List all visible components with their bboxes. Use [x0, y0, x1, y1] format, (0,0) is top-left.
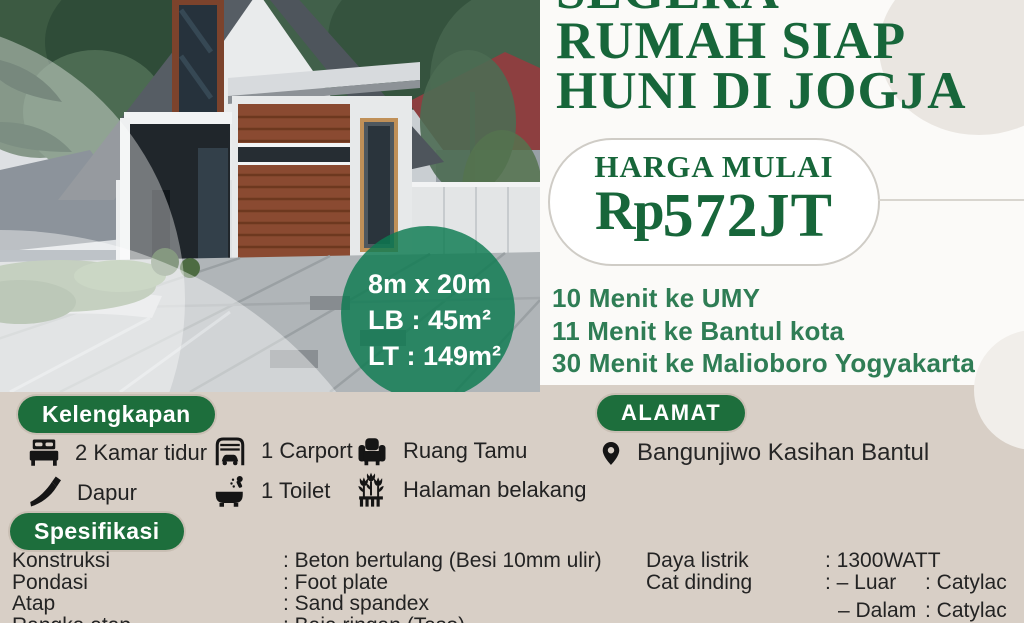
house-photo: 8m x 20m LB : 45m² LT : 149m² — [0, 0, 540, 392]
spec-value: : Sand spandex — [283, 592, 429, 616]
lot-size: 8m x 20m — [368, 269, 491, 299]
land-area: LT : 149m² — [368, 341, 501, 371]
price-amount: 572JT — [663, 182, 833, 250]
house-render: 8m x 20m LB : 45m² LT : 149m² — [0, 0, 540, 392]
distance-item: 10 Menit ke UMY — [552, 282, 975, 315]
spec-label: Atap — [12, 592, 55, 616]
hero-panel: SEGERA RUMAH SIAP HUNI DI JOGJA HARGA MU… — [540, 0, 1024, 385]
feature-item: 1 Carport — [212, 433, 353, 469]
location-pin-icon — [600, 439, 622, 467]
sofa-icon — [354, 433, 390, 469]
feature-item: 2 Kamar tidur — [26, 435, 207, 471]
feature-item: Ruang Tamu — [354, 433, 527, 469]
spec-value: : Catylac — [925, 571, 1007, 595]
distance-item: 11 Menit ke Bantul kota — [552, 315, 975, 348]
bed-icon — [26, 435, 62, 471]
garden-icon — [352, 471, 390, 509]
address-row: Bangunjiwo Kasihan Bantul — [600, 439, 929, 467]
spec-value: : – Luar — [825, 571, 896, 595]
headline: SEGERA RUMAH SIAP HUNI DI JOGJA — [556, 0, 967, 116]
spec-value: : 1300WATT — [825, 549, 941, 573]
property-flyer: 8m x 20m LB : 45m² LT : 149m² SEGERA RUM… — [0, 0, 1024, 623]
price-currency: Rp — [595, 180, 663, 242]
feature-label: 1 Toilet — [261, 478, 330, 504]
distance-item: 30 Menit ke Malioboro Yogyakarta — [552, 347, 975, 380]
feature-label: Dapur — [77, 480, 137, 506]
alamat-badge: ALAMAT — [597, 395, 745, 431]
spec-label: Daya listrik — [646, 549, 749, 573]
decorative-line — [878, 199, 1024, 201]
feature-label: 1 Carport — [261, 438, 353, 464]
feature-item: Halaman belakang — [352, 471, 586, 509]
bathtub-icon — [212, 473, 248, 509]
spec-value: : Baja ringan (Taso) — [283, 614, 465, 623]
kelengkapan-badge: Kelengkapan — [18, 396, 215, 433]
spec-value: – Dalam — [838, 599, 916, 623]
spesifikasi-badge: Spesifikasi — [10, 513, 184, 550]
distance-list: 10 Menit ke UMY 11 Menit ke Bantul kota … — [552, 282, 975, 380]
feature-label: Ruang Tamu — [403, 438, 527, 464]
spec-label: Rangka atap — [12, 614, 131, 623]
details-section: Kelengkapan 2 Kamar tidur — [0, 385, 1024, 623]
price-pill: HARGA MULAI Rp572JT — [548, 138, 880, 266]
headline-line2: RUMAH SIAP — [556, 16, 967, 66]
carport-icon — [212, 433, 248, 469]
price-value: Rp572JT — [550, 181, 878, 252]
feature-item: Dapur — [28, 475, 137, 511]
spec-label: Cat dinding — [646, 571, 752, 595]
headline-line3: HUNI DI JOGJA — [556, 66, 967, 116]
spec-value: : Beton bertulang (Besi 10mm ulir) — [283, 549, 602, 573]
spec-value: : Catylac — [925, 599, 1007, 623]
feature-label: 2 Kamar tidur — [75, 440, 207, 466]
address-text: Bangunjiwo Kasihan Bantul — [637, 439, 929, 467]
feature-label: Halaman belakang — [403, 477, 586, 503]
knife-icon — [28, 475, 64, 511]
building-area: LB : 45m² — [368, 305, 491, 335]
spec-label: Konstruksi — [12, 549, 110, 573]
feature-item: 1 Toilet — [212, 473, 330, 509]
